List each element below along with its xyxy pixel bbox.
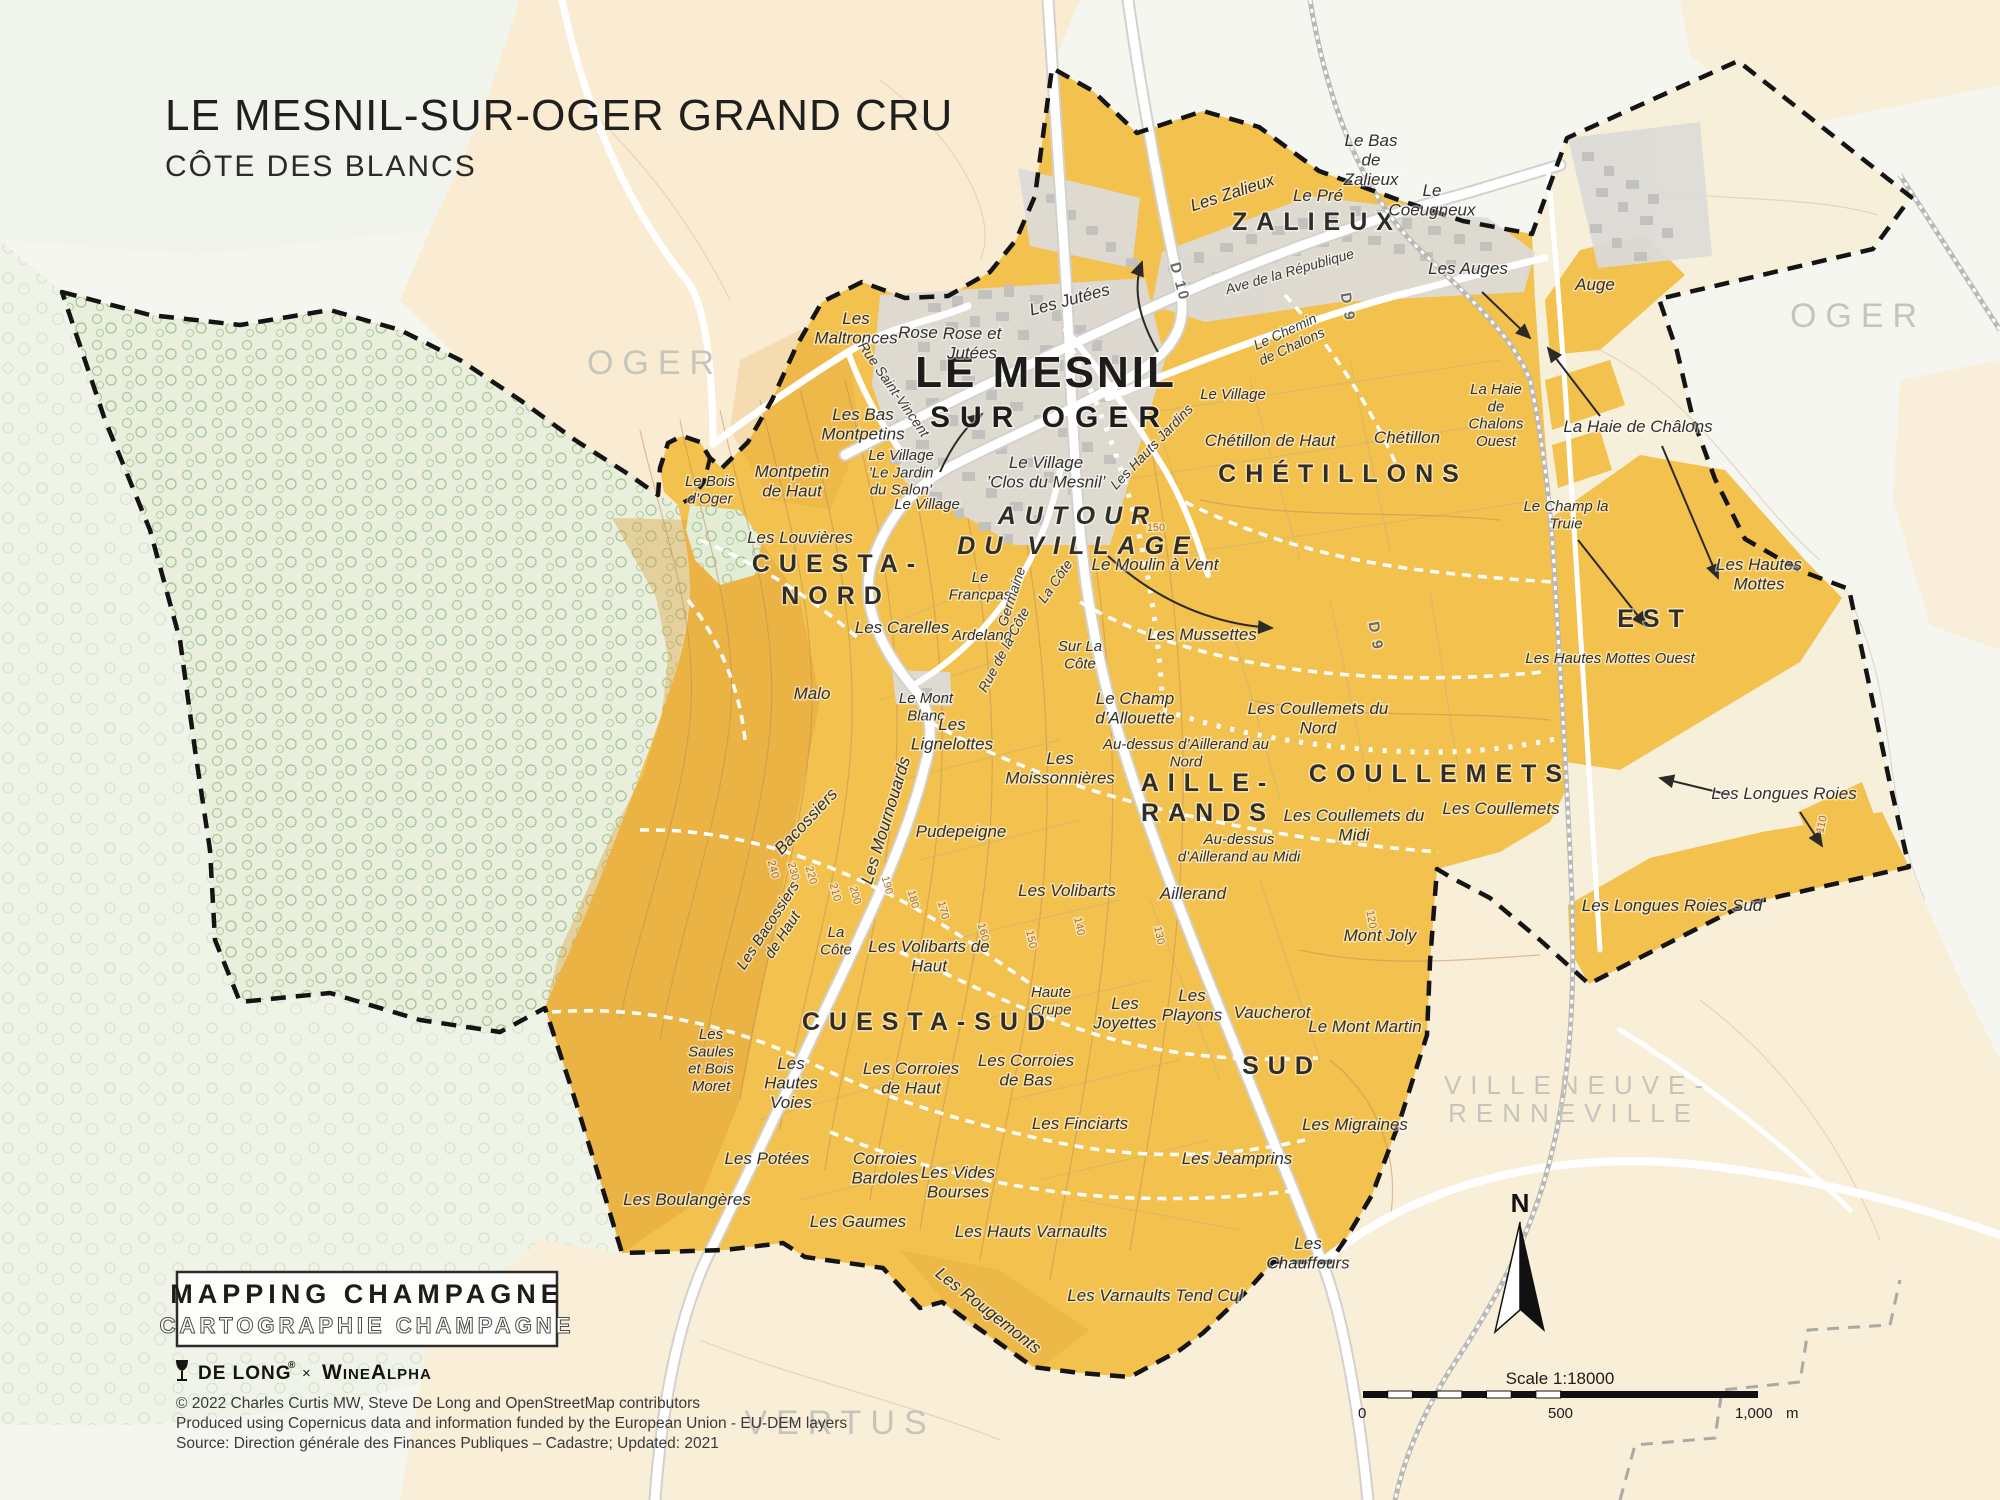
- mont-joly-label: Mont Joly: [1344, 926, 1418, 945]
- credit-line-1: © 2022 Charles Curtis MW, Steve De Long …: [176, 1395, 700, 1412]
- malo-label: Malo: [794, 684, 831, 703]
- le-mont-martin-label: Le Mont Martin: [1308, 1017, 1421, 1036]
- map-title: LE MESNIL-SUR-OGER GRAND CRU: [165, 91, 953, 140]
- les-longues-roies-sud-label: Les Longues Roies Sud: [1582, 896, 1763, 915]
- map-subtitle: CÔTE DES BLANCS: [165, 149, 477, 183]
- les-varnaults-tend-cul-label: Les Varnaults Tend Cul: [1067, 1286, 1244, 1305]
- logo-winealpha: WineAlpha: [322, 1361, 432, 1384]
- renneville-label: RENNEVILLE: [1448, 1098, 1700, 1128]
- ch-tillon-de-haut-label: Chétillon de Haut: [1205, 431, 1337, 450]
- les-gaumes-label: Les Gaumes: [810, 1212, 907, 1231]
- les-carelles-label: Les Carelles: [855, 618, 950, 637]
- zalieux-label: ZALIEUX: [1232, 208, 1402, 236]
- les-migraines-label: Les Migraines: [1302, 1115, 1408, 1134]
- oger-label: OGER: [587, 344, 723, 382]
- scale-bar-segments: [1363, 1391, 1758, 1398]
- les-jeamprins-label: Les Jeamprins: [1182, 1149, 1293, 1168]
- map-poster: CUESTA-NORDCUESTA-SUDAUTOURDU VILLAGEZAL…: [0, 0, 2000, 1500]
- les-vides-bourses-label: Les VidesBourses: [921, 1163, 996, 1202]
- la-haie-de-ch-lons-label: La Haie de Châlons: [1563, 417, 1713, 436]
- brand-primary: MAPPING CHAMPAGNE: [170, 1279, 564, 1309]
- aillerand-label: Aillerand: [1159, 884, 1227, 903]
- montpetin-de-haut-label: Montpetinde Haut: [755, 462, 830, 501]
- les-longues-roies-label: Les Longues Roies: [1711, 784, 1857, 803]
- villeneuve-label: VILLENEUVE-: [1444, 1070, 1712, 1100]
- les-volibarts-label: Les Volibarts: [1018, 881, 1116, 900]
- est-label: EST: [1617, 605, 1693, 633]
- ch-tillons-label: CHÉTILLONS: [1218, 459, 1468, 488]
- nord-label: NORD: [781, 582, 891, 610]
- 150-label: 150: [1147, 522, 1165, 534]
- les-hauts-varnaults-label: Les Hauts Varnaults: [955, 1222, 1108, 1241]
- pudepeigne-label: Pudepeigne: [916, 822, 1007, 841]
- le-pr-label: Le Pré: [1293, 186, 1343, 205]
- le-bois-d-oger-label: Le Boisd’Oger: [685, 473, 736, 507]
- oger-label: OGER: [1790, 297, 1926, 335]
- les-boulang-res-label: Les Boulangères: [623, 1190, 751, 1209]
- map-canvas: CUESTA-NORDCUESTA-SUDAUTOURDU VILLAGEZAL…: [0, 0, 2000, 1500]
- les-pot-es-label: Les Potées: [724, 1149, 810, 1168]
- cuesta-sud-label: CUESTA-SUD: [802, 1008, 1054, 1036]
- le-village-le-jardin-du-salon-label: Le Village’Le Jardindu Salon’: [868, 447, 934, 499]
- les-mussettes-label: Les Mussettes: [1147, 625, 1257, 644]
- auge-label: Auge: [1574, 275, 1615, 294]
- sud-label: SUD: [1242, 1052, 1322, 1080]
- le-moulin-vent-label: Le Moulin à Vent: [1092, 555, 1220, 574]
- le-village-label: Le Village: [894, 496, 960, 513]
- haute-crupe-label: HauteCrupe: [1031, 984, 1072, 1018]
- sur-la-c-te-label: Sur LaCôte: [1058, 638, 1102, 672]
- logo-registered: ®: [288, 1360, 296, 1371]
- la-haie-de-chalons-ouest-label: La HaiedeChalonsOuest: [1468, 381, 1524, 450]
- ch-tillon-label: Chétillon: [1374, 428, 1440, 447]
- credit-line-2: Produced using Copernicus data and infor…: [176, 1415, 847, 1432]
- scale-tick-500: 500: [1548, 1405, 1573, 1422]
- cuesta-label: CUESTA-: [752, 550, 924, 578]
- les-hautes-mottes-ouest-label: Les Hautes Mottes Ouest: [1525, 650, 1695, 667]
- les-bas-montpetins-label: Les BasMontpetins: [821, 405, 905, 444]
- north-label: N: [1511, 1188, 1530, 1218]
- aille-label: AILLE-: [1141, 769, 1276, 797]
- scale-tick-1000: 1,000: [1735, 1405, 1773, 1422]
- sur-oger-label: SUR OGER: [930, 401, 1170, 434]
- les-auges-label: Les Auges: [1428, 259, 1508, 278]
- coullemets-label: COULLEMETS: [1309, 760, 1571, 788]
- logo-separator: ×: [302, 1365, 311, 1382]
- rose-label: Rose: [898, 323, 938, 342]
- scale-tick-0: 0: [1358, 1405, 1366, 1422]
- scale-unit: m: [1786, 1405, 1799, 1422]
- rose-et-jut-es-label: Rose etJutées: [943, 324, 1003, 363]
- credit-line-3: Source: Direction générale des Finances …: [176, 1435, 719, 1452]
- scale-title: Scale 1:18000: [1506, 1369, 1615, 1388]
- les-coullemets-label: Les Coullemets: [1442, 799, 1560, 818]
- brand-secondary: CARTOGRAPHIE CHAMPAGNE: [160, 1313, 575, 1338]
- logo-delong: DE LONG: [198, 1363, 292, 1384]
- les-louvi-res-label: Les Louvières: [747, 528, 853, 547]
- vaucherot-label: Vaucherot: [1234, 1003, 1312, 1022]
- le-village-label: Le Village: [1200, 386, 1266, 403]
- rands-label: RANDS: [1141, 799, 1275, 827]
- corroies-bardoles-label: CorroiesBardoles: [851, 1149, 919, 1188]
- autour-label: AUTOUR: [997, 502, 1158, 530]
- les-finciarts-label: Les Finciarts: [1032, 1114, 1129, 1133]
- le-champ-d-allouette-label: Le Champd’Allouette: [1095, 689, 1174, 728]
